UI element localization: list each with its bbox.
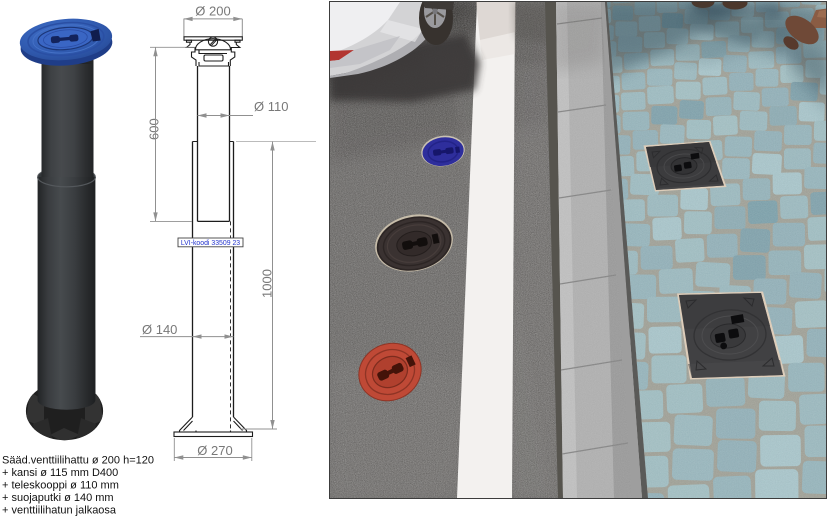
svg-text:600: 600 [147,118,162,140]
svg-text:+ teleskooppi ø 110 mm: + teleskooppi ø 110 mm [2,480,119,492]
svg-text:LVI-koodi 33509 23: LVI-koodi 33509 23 [181,240,240,247]
svg-text:Ø 110: Ø 110 [254,99,288,114]
svg-text:Ø 200: Ø 200 [195,4,230,19]
svg-text:Sääd.venttiilihattu ø 200 h=12: Sääd.venttiilihattu ø 200 h=120 [2,455,154,467]
svg-text:+ suojaputki ø 140 mm: + suojaputki ø 140 mm [2,492,114,504]
svg-text:+ kansi ø 115 mm D400: + kansi ø 115 mm D400 [2,467,118,479]
svg-text:+ venttiilihatun jalkaosa: + venttiilihatun jalkaosa [2,505,117,517]
svg-text:Ø 270: Ø 270 [197,443,232,458]
svg-text:Ø 140: Ø 140 [142,322,177,337]
